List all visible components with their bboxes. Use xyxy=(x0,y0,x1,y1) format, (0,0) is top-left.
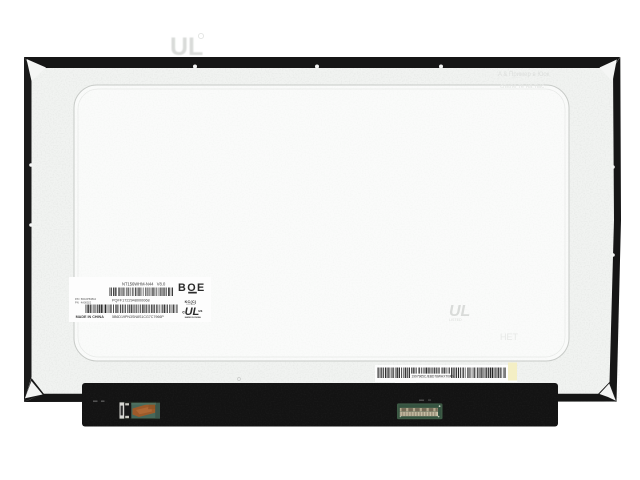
svg-text:P/N 5D10P53844: P/N 5D10P53844 xyxy=(75,297,96,301)
svg-text:5B6D19PN3SN8S1CG7C7966P: 5B6D19PN3SN8S1CG7C7966P xyxy=(112,315,164,319)
svg-text:KC(C): KC(C) xyxy=(185,300,197,304)
svg-text:A & Пример в Юок: A & Пример в Юок xyxy=(498,72,550,78)
svg-text:PN 4A00022: PN 4A00022 xyxy=(75,300,92,304)
svg-text:NT156WHM-N44 V8.0: NT156WHM-N44 V8.0 xyxy=(122,282,166,287)
svg-text:LISTED: LISTED xyxy=(449,318,462,322)
svg-text:c: c xyxy=(182,310,185,315)
svg-text:MADE IN CHINA: MADE IN CHINA xyxy=(185,316,201,319)
svg-text:спиле те на тыс: спиле те на тыс xyxy=(500,84,544,90)
svg-text:MADE IN CHINA: MADE IN CHINA xyxy=(76,315,105,319)
svg-text:PQFF1722948000068: PQFF1722948000068 xyxy=(112,299,150,303)
svg-text:1997965CJEBD78WHXT0W5: 1997965CJEBD78WHXT0W5 xyxy=(412,374,455,378)
svg-text:НЕТ: НЕТ xyxy=(500,332,519,342)
svg-text:us: us xyxy=(198,309,202,313)
